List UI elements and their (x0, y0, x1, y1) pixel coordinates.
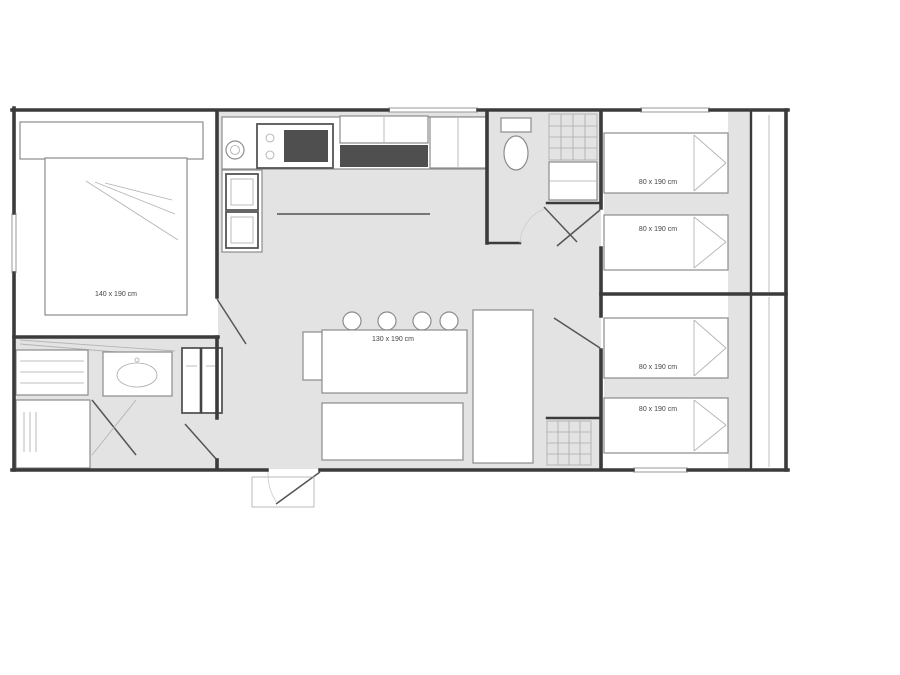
single-bed-size-label: 80 x 190 cm (639, 226, 677, 233)
single-bed (604, 215, 728, 270)
master-bedroom: 140 x 190 cm (20, 122, 203, 315)
chair-icon (413, 312, 431, 330)
floor-plan-page: 140 x 190 cm (0, 0, 900, 675)
toilet-tank (501, 118, 531, 132)
dinette-size-label: 130 x 190 cm (372, 336, 414, 343)
toilet-icon (504, 136, 528, 170)
chair-icon (343, 312, 361, 330)
bench-bottom (322, 403, 463, 460)
bench-right (473, 310, 533, 463)
side-seat (303, 332, 322, 380)
single-bed-size-label: 80 x 190 cm (639, 364, 677, 371)
single-bed-size-label: 80 x 190 cm (639, 406, 677, 413)
shower (16, 400, 90, 468)
vanity-shelves (16, 350, 88, 395)
single-bed-size-label: 80 x 190 cm (639, 179, 677, 186)
floor-plan-drawing: 140 x 190 cm (0, 0, 900, 675)
kitchen-sink-icon (226, 141, 244, 159)
double-bed-size-label: 140 x 190 cm (95, 291, 137, 298)
washbasin (103, 352, 172, 396)
worktop-dark (340, 145, 428, 167)
entrance-step (252, 477, 314, 507)
chair-icon (378, 312, 396, 330)
wardrobe-top (20, 122, 203, 159)
dining-area: 130 x 190 cm (303, 310, 533, 463)
chair-icon (440, 312, 458, 330)
entrance-door (252, 472, 320, 507)
